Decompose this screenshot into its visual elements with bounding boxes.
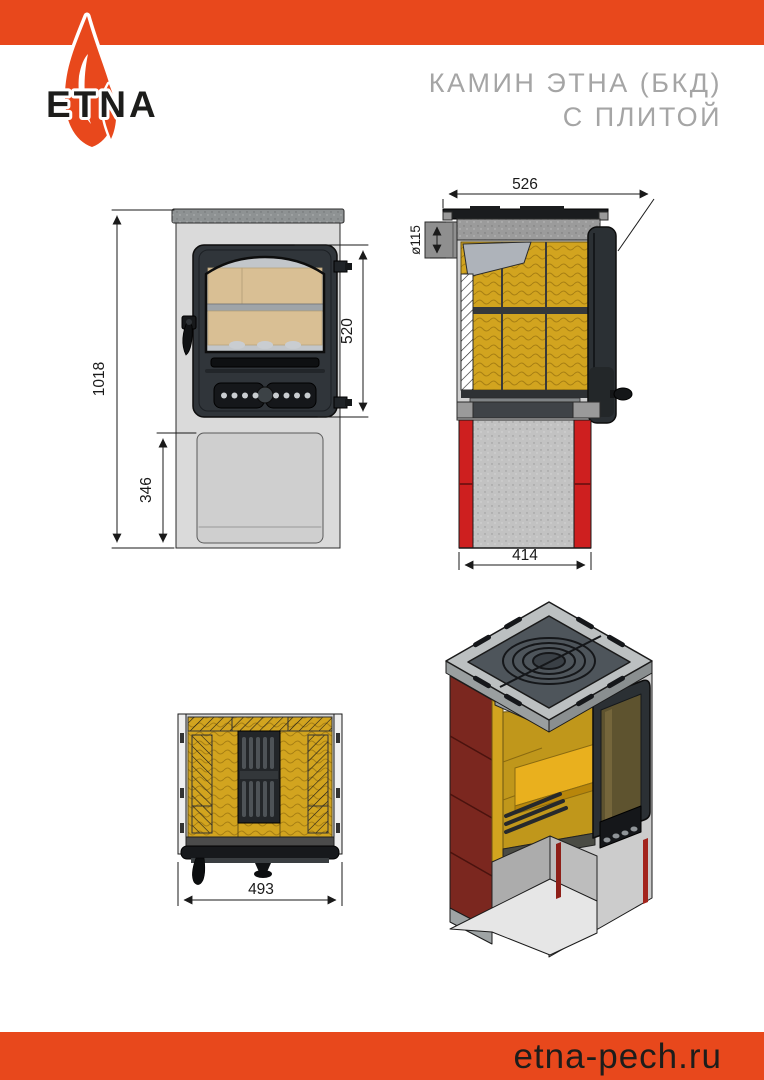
title-line-1: КАМИН ЭТНА (БКД): [429, 66, 722, 100]
dim-label-flue-diameter: ø115: [408, 225, 423, 255]
etna-logo: ETNA: [46, 16, 159, 147]
website-url: etna-pech.ru: [513, 1037, 722, 1077]
front-view: 1018 346 520: [91, 209, 368, 548]
page-title: КАМИН ЭТНА (БКД) С ПЛИТОЙ: [429, 66, 722, 134]
flame-icon: [65, 16, 116, 147]
top-section-view: 493: [178, 714, 342, 906]
isometric-cutaway-view: [446, 602, 652, 957]
dim-label-base-depth: 414: [512, 547, 538, 564]
technical-drawing-canvas: ETNA: [0, 0, 764, 1080]
dim-label-total-height: 1018: [91, 362, 108, 396]
dim-label-depth: 526: [512, 176, 538, 193]
dim-label-base-height: 346: [138, 477, 155, 503]
side-section-view: 526 ø115 414: [408, 176, 654, 570]
title-line-2: С ПЛИТОЙ: [429, 100, 722, 134]
dim-label-width: 493: [248, 881, 274, 898]
dim-label-door-height: 520: [339, 318, 356, 344]
logo-text: ETNA: [46, 84, 159, 125]
page: ETNA: [0, 0, 764, 1080]
